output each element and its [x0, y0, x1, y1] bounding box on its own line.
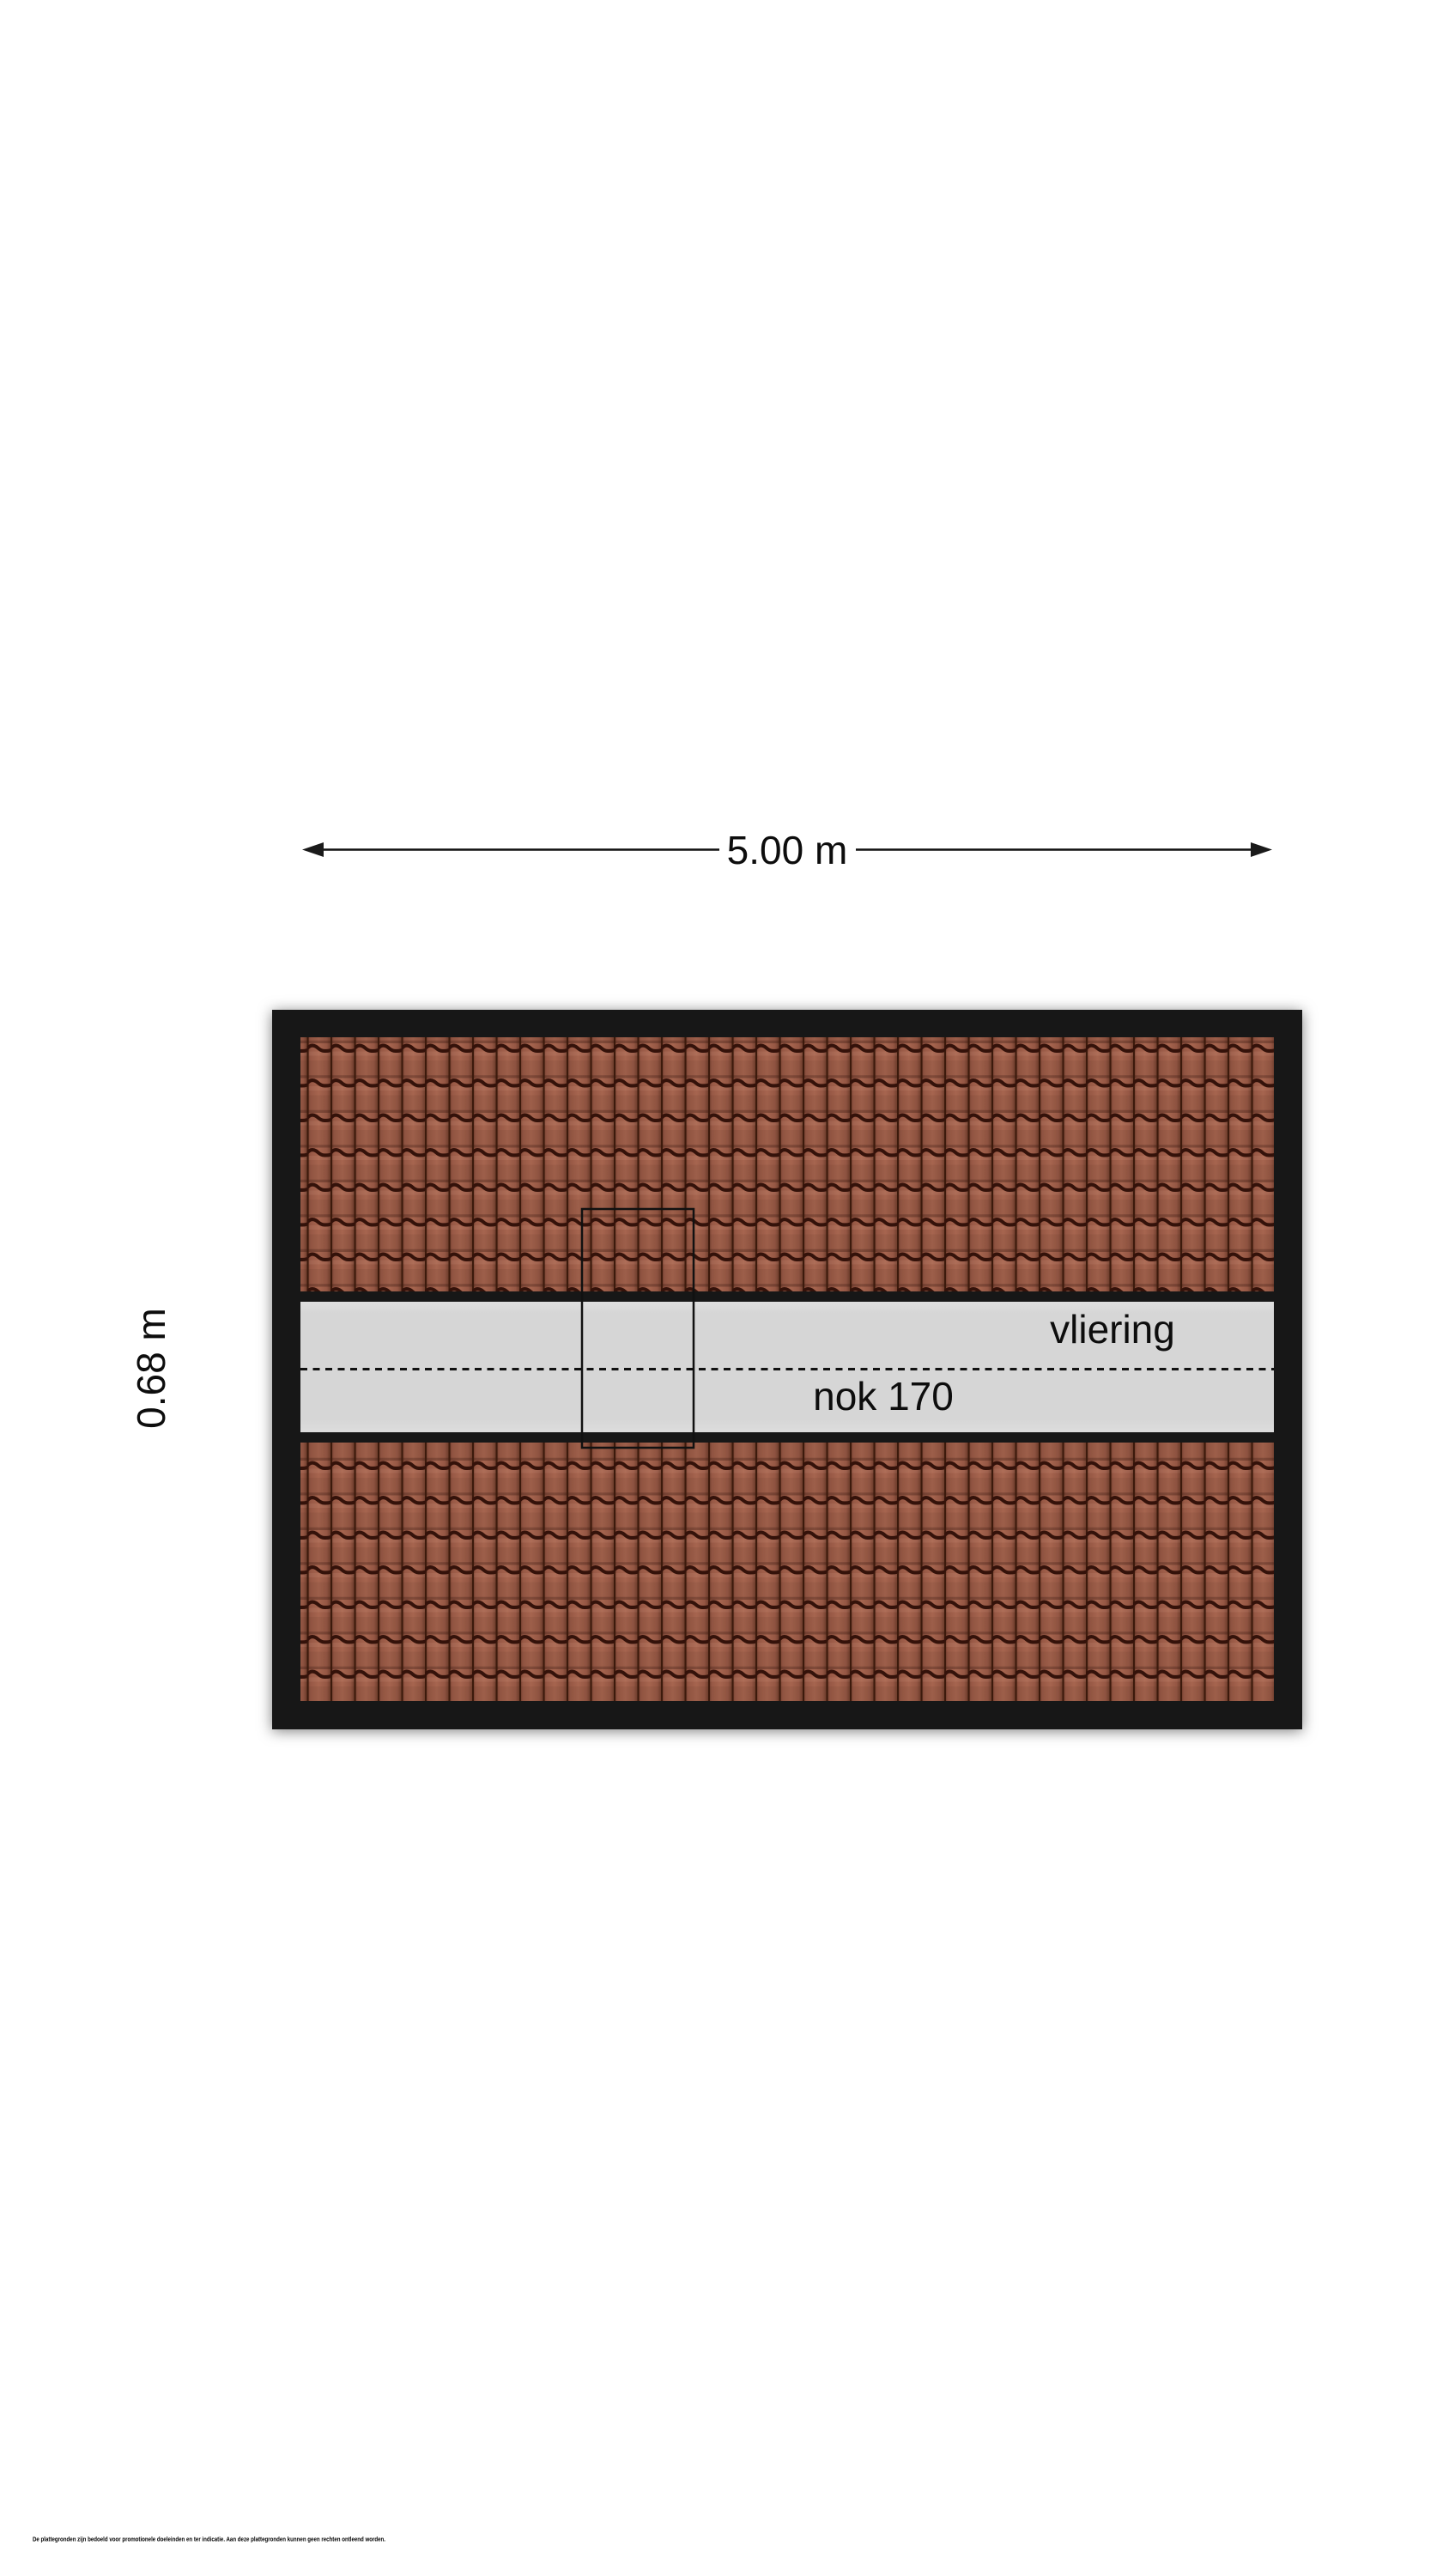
- svg-text:nok 170: nok 170: [813, 1374, 954, 1419]
- svg-text:0.68 m: 0.68 m: [129, 1308, 173, 1429]
- svg-text:5.00 m: 5.00 m: [727, 828, 848, 872]
- svg-text:De plattegronden zijn bedoeld: De plattegronden zijn bedoeld voor promo…: [33, 2536, 385, 2543]
- svg-text:vliering: vliering: [1050, 1307, 1175, 1352]
